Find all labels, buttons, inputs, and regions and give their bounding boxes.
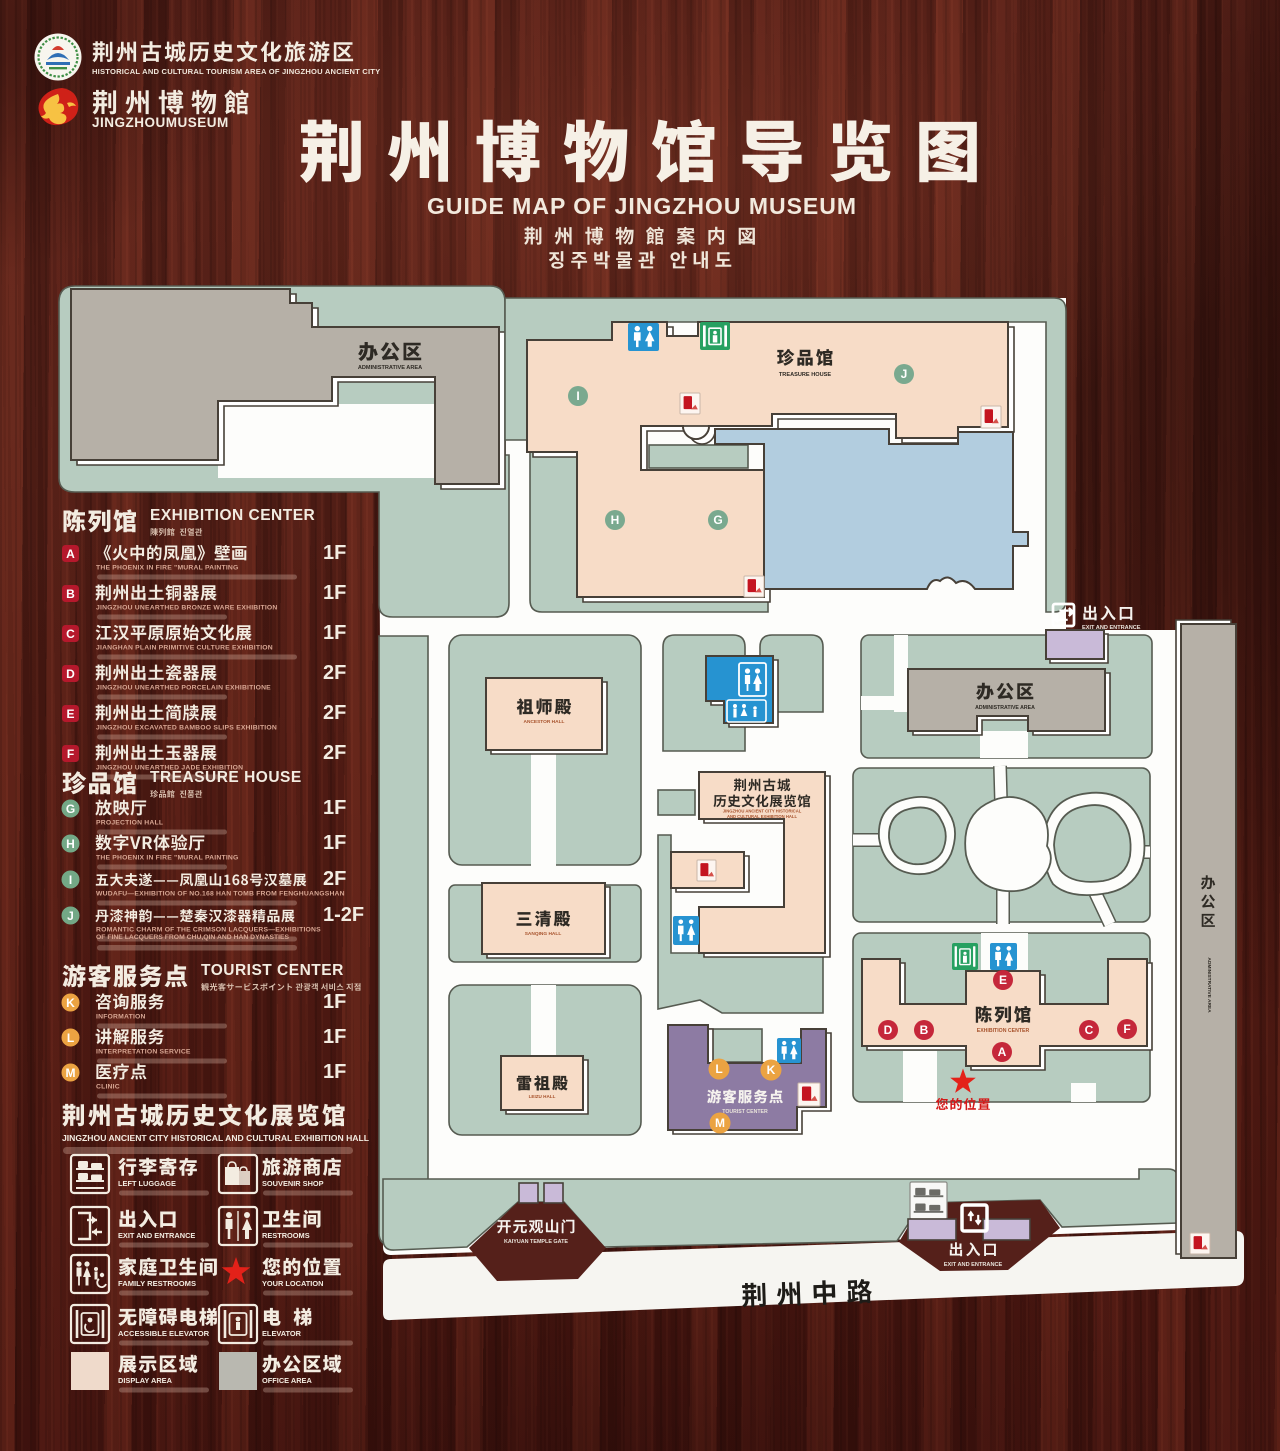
svg-text:G: G — [66, 802, 75, 816]
svg-text:EXHIBITION CENTER: EXHIBITION CENTER — [977, 1028, 1030, 1034]
svg-text:M: M — [66, 1066, 76, 1080]
svg-text:2F: 2F — [323, 868, 346, 890]
svg-text:1F: 1F — [323, 1026, 346, 1048]
svg-text:PROJECTION HALL: PROJECTION HALL — [96, 820, 163, 827]
svg-text:GUIDE MAP OF JINGZHOU MUSEUM: GUIDE MAP OF JINGZHOU MUSEUM — [427, 193, 857, 219]
svg-text:2F: 2F — [323, 662, 346, 684]
svg-text:JINGZHOU UNEARTHED PORCELAIN E: JINGZHOU UNEARTHED PORCELAIN EXHIBITIONE — [96, 685, 271, 692]
svg-text:2F: 2F — [323, 742, 346, 764]
svg-text:ADMINISTRATIVE AREA: ADMINISTRATIVE AREA — [1206, 957, 1212, 1013]
svg-text:AND CULTURAL EXHIBITION HALL: AND CULTURAL EXHIBITION HALL — [727, 814, 798, 819]
svg-text:A: A — [66, 547, 75, 561]
svg-text:E: E — [999, 973, 1007, 987]
svg-text:D: D — [884, 1023, 893, 1037]
svg-text:E: E — [66, 707, 74, 721]
svg-text:M: M — [715, 1116, 725, 1130]
svg-text:ELEVATOR: ELEVATOR — [262, 1329, 302, 1338]
svg-text:JINGZHOUMUSEUM: JINGZHOUMUSEUM — [92, 115, 229, 130]
svg-text:J: J — [67, 909, 74, 923]
svg-text:B: B — [66, 587, 75, 601]
svg-text:EXHIBITION CENTER: EXHIBITION CENTER — [150, 507, 315, 524]
svg-text:JINGZHOU ANCIENT CITY HISTORIC: JINGZHOU ANCIENT CITY HISTORICAL AND CUL… — [62, 1133, 369, 1143]
svg-text:I: I — [576, 389, 579, 403]
svg-text:INFORMATION: INFORMATION — [96, 1014, 146, 1021]
svg-text:FAMILY RESTROOMS: FAMILY RESTROOMS — [118, 1279, 196, 1288]
svg-text:LEFT LUGGAGE: LEFT LUGGAGE — [118, 1179, 176, 1188]
svg-text:ADMINISTRATIVE AREA: ADMINISTRATIVE AREA — [975, 705, 1035, 711]
svg-text:1F: 1F — [323, 542, 346, 564]
svg-text:EXIT AND ENTRANCE: EXIT AND ENTRANCE — [1082, 625, 1141, 631]
svg-text:LEIZU HALL: LEIZU HALL — [529, 1094, 556, 1099]
svg-text:OF FINE LACQUERS FROM CHU,QIN: OF FINE LACQUERS FROM CHU,QIN AND HAN DY… — [96, 934, 290, 941]
svg-text:DISPLAY AREA: DISPLAY AREA — [118, 1376, 173, 1385]
svg-text:1-2F: 1-2F — [323, 904, 364, 926]
svg-text:F: F — [67, 747, 74, 761]
svg-text:SANQING HALL: SANQING HALL — [525, 931, 562, 937]
svg-text:EXIT AND ENTRANCE: EXIT AND ENTRANCE — [118, 1231, 195, 1240]
svg-text:EXIT AND ENTRANCE: EXIT AND ENTRANCE — [944, 1262, 1003, 1268]
svg-text:ANCESTOR HALL: ANCESTOR HALL — [524, 719, 565, 725]
svg-text:TOURIST CENTER: TOURIST CENTER — [201, 962, 344, 979]
svg-text:H: H — [611, 513, 620, 527]
svg-text:JINGZHOU UNEARTHED BRONZE WARE: JINGZHOU UNEARTHED BRONZE WARE EXHIBITIO… — [96, 605, 278, 612]
svg-text:A: A — [998, 1045, 1007, 1059]
svg-text:INTERPRETATION SERVICE: INTERPRETATION SERVICE — [96, 1049, 191, 1056]
svg-text:KAIYUAN TEMPLE GATE: KAIYUAN TEMPLE GATE — [504, 1239, 568, 1245]
svg-text:TOURIST CENTER: TOURIST CENTER — [722, 1109, 768, 1115]
svg-text:TREASURE HOUSE: TREASURE HOUSE — [779, 372, 831, 378]
svg-text:I: I — [69, 873, 72, 887]
svg-text:1F: 1F — [323, 991, 346, 1013]
svg-text:WUDAFU—EXHIBITION OF NO.168 HA: WUDAFU—EXHIBITION OF NO.168 HAN TOMB FRO… — [96, 891, 345, 898]
svg-text:1F: 1F — [323, 1061, 346, 1083]
svg-text:C: C — [1085, 1023, 1094, 1037]
svg-text:JINGZHOU ANCIENT CITY HISTORIC: JINGZHOU ANCIENT CITY HISTORICAL — [723, 809, 802, 814]
svg-text:L: L — [67, 1031, 74, 1045]
svg-text:ADMINISTRATIVE AREA: ADMINISTRATIVE AREA — [358, 365, 422, 371]
svg-text:YOUR LOCATION: YOUR LOCATION — [262, 1279, 323, 1288]
svg-text:JIANGHAN PLAIN PRIMITIVE CULTU: JIANGHAN PLAIN PRIMITIVE CULTURE EXHIBIT… — [96, 645, 273, 652]
svg-text:ACCESSIBLE ELEVATOR: ACCESSIBLE ELEVATOR — [118, 1329, 210, 1338]
svg-text:SOUVENIR SHOP: SOUVENIR SHOP — [262, 1179, 324, 1188]
svg-text:L: L — [715, 1062, 722, 1076]
svg-text:ROMANTIC CHARM OF THE CRIMSON: ROMANTIC CHARM OF THE CRIMSON LACQUERS—E… — [96, 927, 321, 934]
svg-text:H: H — [66, 837, 75, 851]
svg-text:TREASURE HOUSE: TREASURE HOUSE — [150, 769, 302, 786]
svg-text:K: K — [66, 996, 75, 1010]
svg-text:2F: 2F — [323, 702, 346, 724]
svg-text:J: J — [901, 367, 908, 381]
svg-text:C: C — [66, 627, 75, 641]
svg-text:THE PHOENIX IN FIRE "MURAL PAI: THE PHOENIX IN FIRE "MURAL PAINTING — [96, 565, 239, 572]
svg-text:1F: 1F — [323, 582, 346, 604]
svg-text:D: D — [66, 667, 75, 681]
svg-text:RESTROOMS: RESTROOMS — [262, 1231, 310, 1240]
svg-text:1F: 1F — [323, 622, 346, 644]
svg-text:1F: 1F — [323, 832, 346, 854]
svg-text:B: B — [920, 1023, 929, 1037]
svg-text:G: G — [713, 513, 722, 527]
svg-text:CLINIC: CLINIC — [96, 1084, 120, 1091]
svg-text:HISTORICAL AND CULTURAL TOURIS: HISTORICAL AND CULTURAL TOURISM AREA OF … — [92, 67, 380, 76]
svg-text:JINGZHOU EXCAVATED BAMBOO SLIP: JINGZHOU EXCAVATED BAMBOO SLIPS EXHIBITI… — [96, 725, 277, 732]
svg-text:1F: 1F — [323, 797, 346, 819]
svg-text:K: K — [767, 1063, 776, 1077]
svg-text:F: F — [1123, 1022, 1130, 1036]
svg-text:OFFICE AREA: OFFICE AREA — [262, 1376, 312, 1385]
svg-text:THE PHOENIX IN FIRE "MURAL PAI: THE PHOENIX IN FIRE "MURAL PAINTING — [96, 855, 239, 862]
